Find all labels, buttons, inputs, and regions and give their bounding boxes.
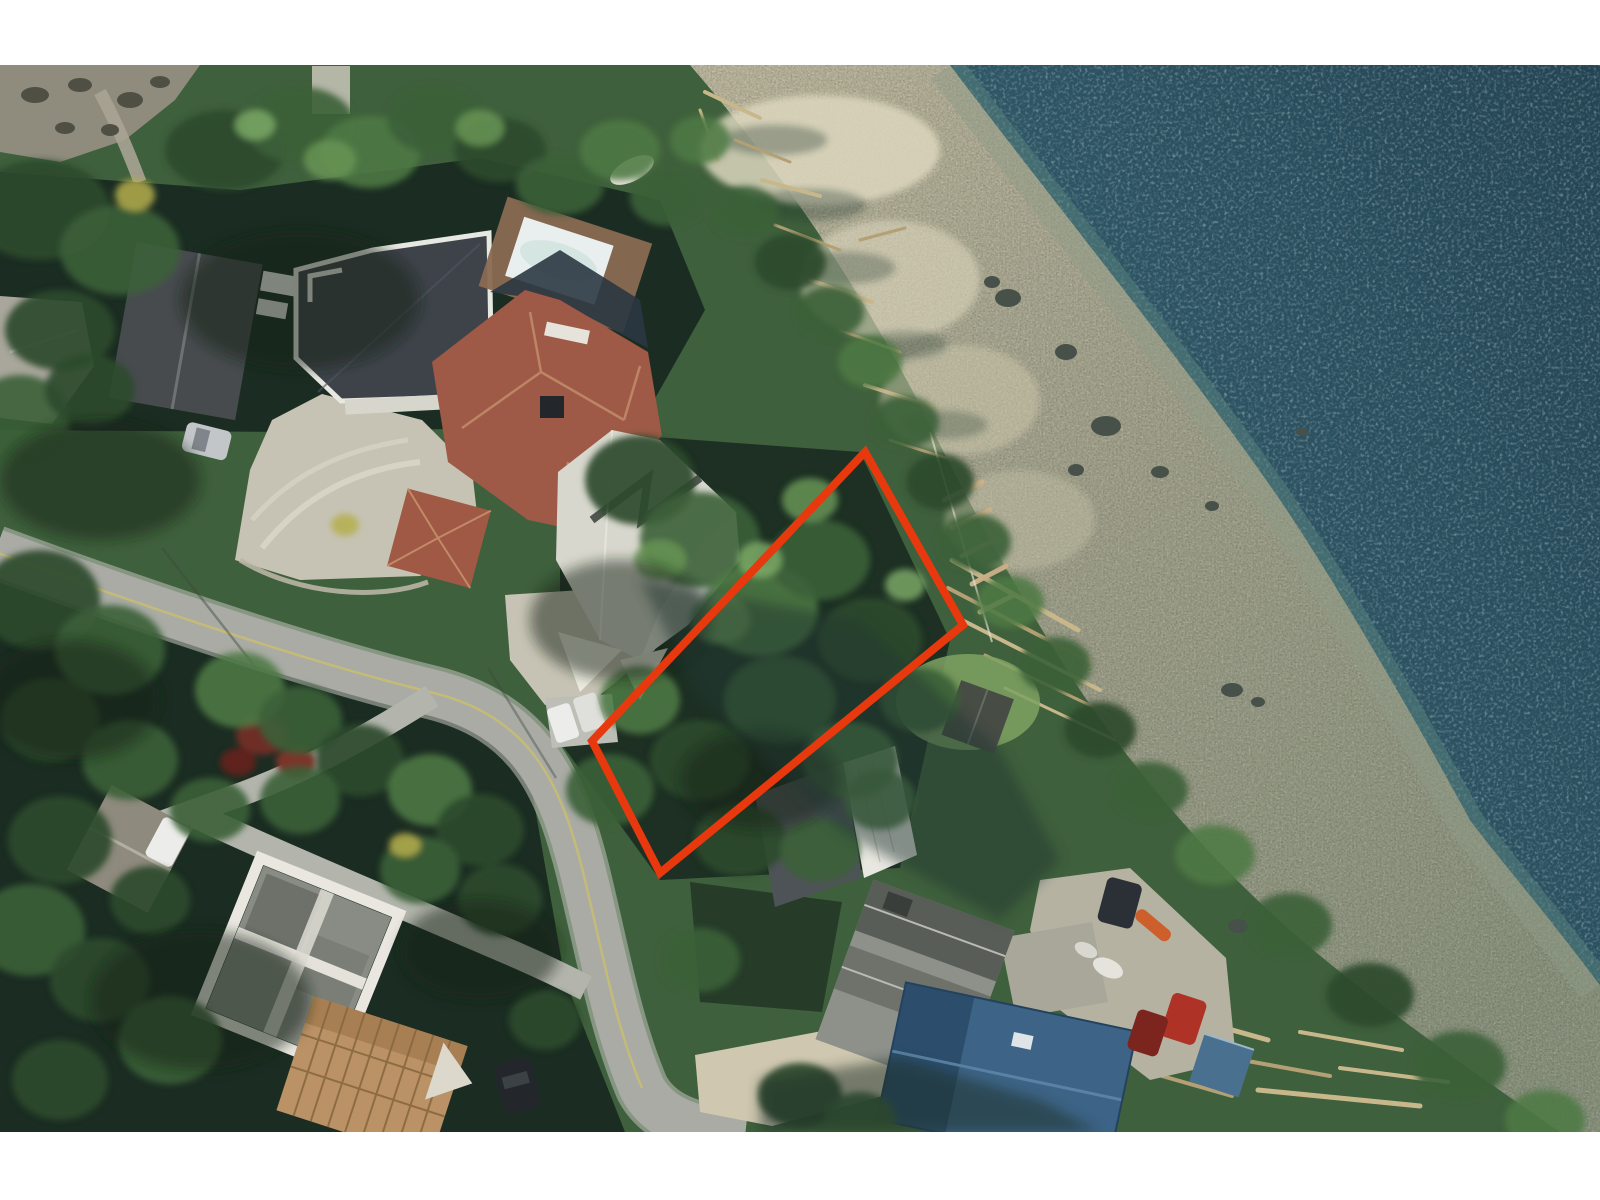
aerial-photo bbox=[0, 0, 1600, 1200]
aerial-photo-frame bbox=[0, 0, 1600, 1200]
beach-deck bbox=[1000, 922, 1108, 1018]
